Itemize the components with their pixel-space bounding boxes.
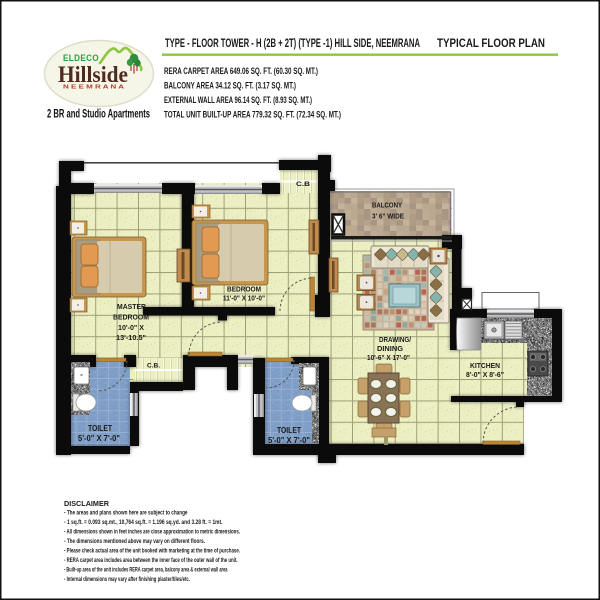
svg-text:MASTER: MASTER: [117, 302, 147, 311]
svg-text:3' 6" WIDE: 3' 6" WIDE: [372, 212, 404, 221]
svg-text:EXTERNAL WALL AREA 96.14 SQ. F: EXTERNAL WALL AREA 96.14 SQ. FT. (8.93 S…: [164, 95, 312, 106]
svg-text:TOILET: TOILET: [88, 423, 113, 433]
svg-text:C.B.: C.B.: [147, 363, 160, 370]
svg-text:DRAWING/: DRAWING/: [379, 335, 412, 344]
svg-text:- Built-up area of the unit in: - Built-up area of the unit includes RER…: [64, 567, 228, 574]
svg-text:C.B: C.B: [296, 181, 310, 188]
svg-text:11'-0" X 10'-0": 11'-0" X 10'-0": [223, 294, 265, 303]
svg-text:DINING: DINING: [377, 344, 403, 353]
svg-text:BALCONY AREA 34.12 SQ. FT. (3.: BALCONY AREA 34.12 SQ. FT. (3.17 SQ. MT.…: [164, 81, 296, 92]
svg-text:- The dimensions mentioned abo: - The dimensions mentioned above may var…: [64, 538, 205, 545]
svg-text:2 BR and Studio Apartments: 2 BR and Studio Apartments: [47, 107, 150, 121]
svg-text:- Internal dimensions may vary: - Internal dimensions may vary after fin…: [64, 576, 190, 583]
svg-text:8'-0" X 8'-6": 8'-0" X 8'-6": [466, 370, 504, 379]
svg-text:10'-0" X: 10'-0" X: [118, 323, 144, 332]
svg-text:5'-0" X 7'-0": 5'-0" X 7'-0": [78, 434, 120, 443]
svg-text:DISCLAIMER: DISCLAIMER: [64, 501, 109, 508]
svg-text:TOTAL UNIT BUILT-UP AREA 779.3: TOTAL UNIT BUILT-UP AREA 779.32 SQ. FT. …: [164, 110, 341, 121]
svg-text:RERA CARPET AREA 649.06 SQ. FT: RERA CARPET AREA 649.06 SQ. FT. (60.30 S…: [164, 66, 318, 77]
svg-text:- All dimensions shown in feet: - All dimensions shown in feet inches ar…: [64, 529, 240, 536]
svg-text:13'-10.5": 13'-10.5": [116, 333, 146, 342]
svg-text:Hillside: Hillside: [58, 62, 128, 87]
svg-text:- 1 sq.ft. = 0.093 sq.mt., 10,: - 1 sq.ft. = 0.093 sq.mt., 10,764 sq.ft.…: [64, 519, 223, 526]
svg-text:10'-6" X 17'-0": 10'-6" X 17'-0": [367, 353, 410, 362]
svg-text:N E E M R A N A: N E E M R A N A: [63, 85, 125, 91]
svg-text:- The areas and plans shown he: - The areas and plans shown here are sub…: [64, 510, 188, 517]
svg-text:5'-0" X 7'-0": 5'-0" X 7'-0": [268, 436, 310, 445]
svg-text:TYPICAL FLOOR PLAN: TYPICAL FLOOR PLAN: [437, 38, 545, 50]
svg-text:- Please check actual area of: - Please check actual area of the unit b…: [64, 548, 240, 555]
svg-text:TYPE - FLOOR TOWER - H (2B + 2: TYPE - FLOOR TOWER - H (2B + 2T) (TYPE -…: [165, 38, 420, 50]
svg-text:KITCHEN: KITCHEN: [470, 361, 500, 370]
svg-text:- RERA carpet area includes ar: - RERA carpet area includes area between…: [64, 557, 238, 564]
svg-text:BALCONY: BALCONY: [372, 201, 402, 210]
svg-text:TOILET: TOILET: [277, 425, 302, 435]
svg-text:BEDROOM: BEDROOM: [227, 285, 261, 294]
svg-text:BEDROOM: BEDROOM: [113, 313, 149, 322]
